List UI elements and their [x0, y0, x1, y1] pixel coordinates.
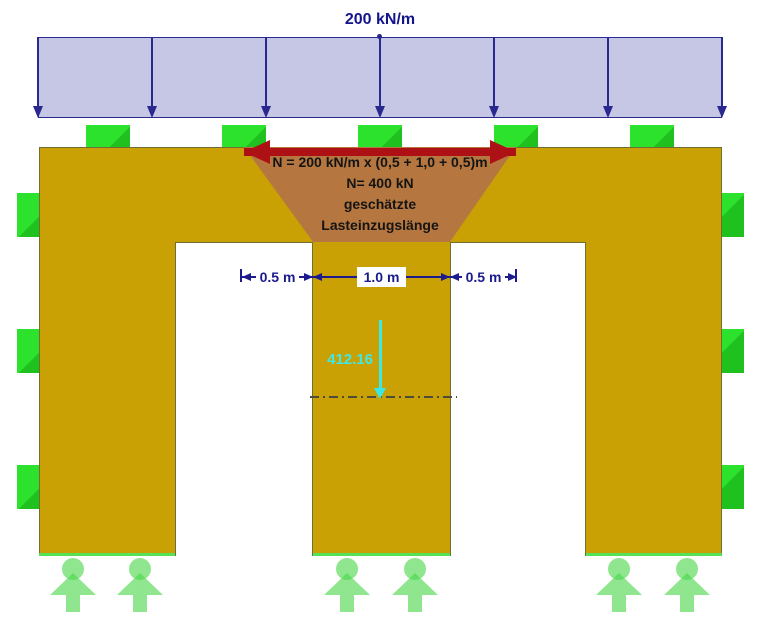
dimension-left: 0.5 m — [242, 266, 313, 288]
arrowhead-right-icon — [508, 273, 517, 281]
reaction-arrow-head — [664, 573, 710, 595]
arrowhead-left-icon — [450, 273, 459, 281]
arrowhead-right-icon — [304, 273, 313, 281]
axial-force-value: 412.16 — [301, 351, 373, 368]
reaction-up-icon[interactable] — [117, 558, 163, 614]
line-support[interactable] — [39, 553, 175, 556]
down-arrow-icon — [721, 37, 723, 106]
note-line: geschätzte — [230, 194, 530, 215]
note-line: Lasteinzugslänge — [230, 215, 530, 236]
reaction-up-icon[interactable] — [50, 558, 96, 614]
down-arrow-icon — [379, 37, 381, 106]
dimension-label: 0.5 m — [256, 267, 300, 287]
dimension-label: 0.5 m — [462, 267, 506, 287]
dimension-middle: 1.0 m — [313, 266, 450, 288]
note-line: N= 400 kN — [230, 173, 530, 194]
reaction-up-icon[interactable] — [664, 558, 710, 614]
reaction-arrow-stem — [66, 595, 80, 612]
reaction-arrow-stem — [133, 595, 147, 612]
arrowhead-left-icon — [242, 273, 251, 281]
down-arrow-icon — [493, 37, 495, 106]
reaction-arrow-stem — [680, 595, 694, 612]
force-arrow — [379, 320, 382, 390]
reaction-arrow-head — [50, 573, 96, 595]
load-magnitude-label: 200 kN/m — [0, 11, 760, 29]
reaction-arrow-head — [392, 573, 438, 595]
reaction-up-icon[interactable] — [324, 558, 370, 614]
note-line: N = 200 kN/m x (0,5 + 1,0 + 0,5)m — [230, 152, 530, 173]
reaction-arrow-stem — [612, 595, 626, 612]
reaction-arrow-head — [117, 573, 163, 595]
wall-opening — [175, 242, 313, 556]
load-midpoint-handle — [377, 34, 382, 39]
down-arrow-icon — [607, 37, 609, 106]
reaction-up-icon[interactable] — [596, 558, 642, 614]
reaction-arrow-head — [596, 573, 642, 595]
dimension-label: 1.0 m — [357, 267, 407, 287]
line-support[interactable] — [586, 553, 722, 556]
down-arrow-icon — [265, 37, 267, 106]
arrowhead-right-icon — [441, 273, 450, 281]
reaction-up-icon[interactable] — [392, 558, 438, 614]
arrowhead-left-icon — [313, 273, 322, 281]
wall-opening — [450, 242, 586, 556]
reaction-arrow-head — [324, 573, 370, 595]
reaction-arrow-stem — [408, 595, 422, 612]
line-support[interactable] — [313, 553, 450, 556]
down-arrow-icon — [151, 37, 153, 106]
arrowhead-down-icon — [374, 388, 386, 399]
model-viewport: 200 kN/m N = 200 kN/m x (0,5 + 1,0 + 0,5… — [0, 0, 760, 628]
load-calculation-note: N = 200 kN/m x (0,5 + 1,0 + 0,5)m N= 400… — [230, 152, 530, 236]
reaction-arrow-stem — [340, 595, 354, 612]
down-arrow-icon — [37, 37, 39, 106]
dimension-right: 0.5 m — [450, 266, 517, 288]
